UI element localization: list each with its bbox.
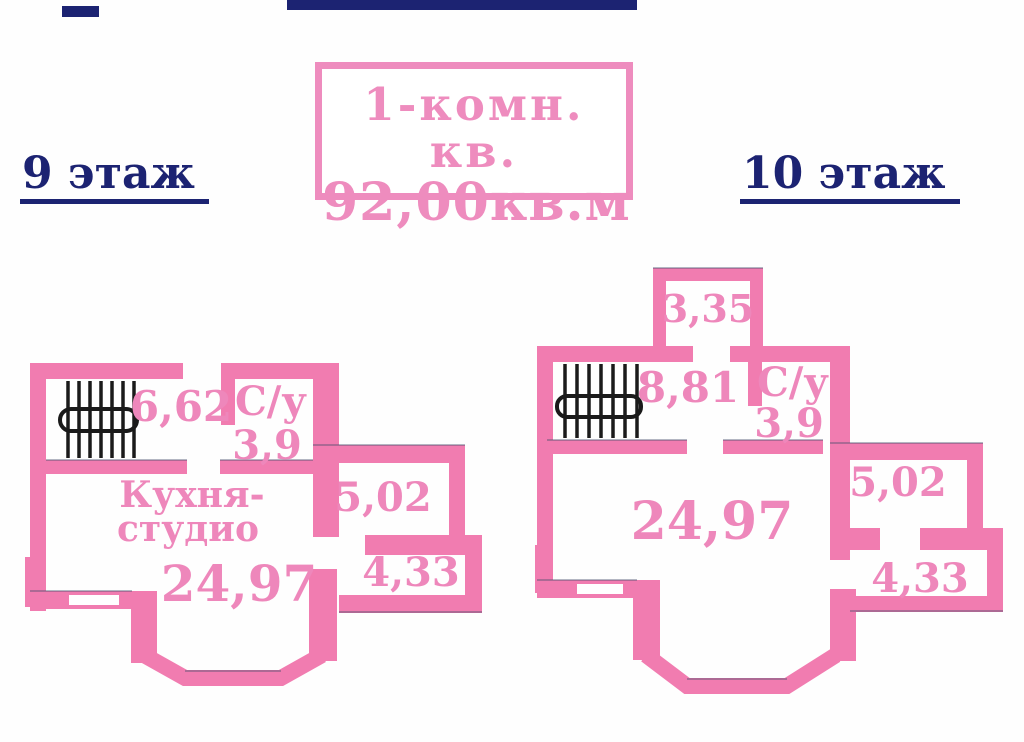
floor9-room-labels: 6,62 С/у 3,9 Кухня- студио 24,97 5,02 4,…: [117, 378, 460, 613]
floor10-stair-hall-area-label: 8,81: [637, 363, 739, 412]
decor-bar-long: [287, 0, 637, 10]
floor10-balcony-area-label: 3,35: [662, 286, 755, 331]
floor10-plan: 3,35 8,81 С/у 3,9 24,97 5,02 4,33: [535, 265, 1015, 700]
floor10-staircase-icon: [557, 364, 641, 438]
floor9-kitchen-label-line2: студио: [117, 508, 259, 550]
floor9-stair-hall-area-label: 6,62: [130, 382, 232, 431]
floor9-plan: 6,62 С/у 3,9 Кухня- студио 24,97 5,02 4,…: [25, 355, 485, 700]
apartment-type-label: 1-комн. кв.: [322, 81, 626, 176]
floor9-staircase-icon: [60, 381, 137, 458]
floor9-heading: 9 этаж: [20, 152, 209, 204]
floor10-heading-text: 10 этаж: [742, 148, 946, 199]
floor9-storage-area-label: 5,02: [334, 474, 431, 521]
decor-bar-small: [62, 6, 99, 17]
floor9-bathroom-label: С/у: [235, 378, 307, 425]
floor9-hall-area-label: 4,33: [362, 549, 459, 596]
floor10-bathroom-area-label: 3,9: [754, 400, 824, 447]
floor9-heading-text: 9 этаж: [22, 148, 195, 199]
floor9-bathroom-area-label: 3,9: [232, 422, 302, 469]
floor10-bathroom-label: С/у: [757, 359, 829, 406]
apartment-area-label: 92,00кв.м: [322, 176, 626, 231]
floor10-room-area-label: 24,97: [631, 491, 794, 552]
floor9-kitchen-area-label: 24,97: [161, 554, 318, 613]
floor10-hall-area-label: 4,33: [871, 555, 968, 602]
floor10-storage-area-label: 5,02: [849, 459, 946, 506]
apartment-title-box: 1-комн. кв. 92,00кв.м: [315, 62, 633, 200]
floor10-heading: 10 этаж: [740, 152, 960, 204]
